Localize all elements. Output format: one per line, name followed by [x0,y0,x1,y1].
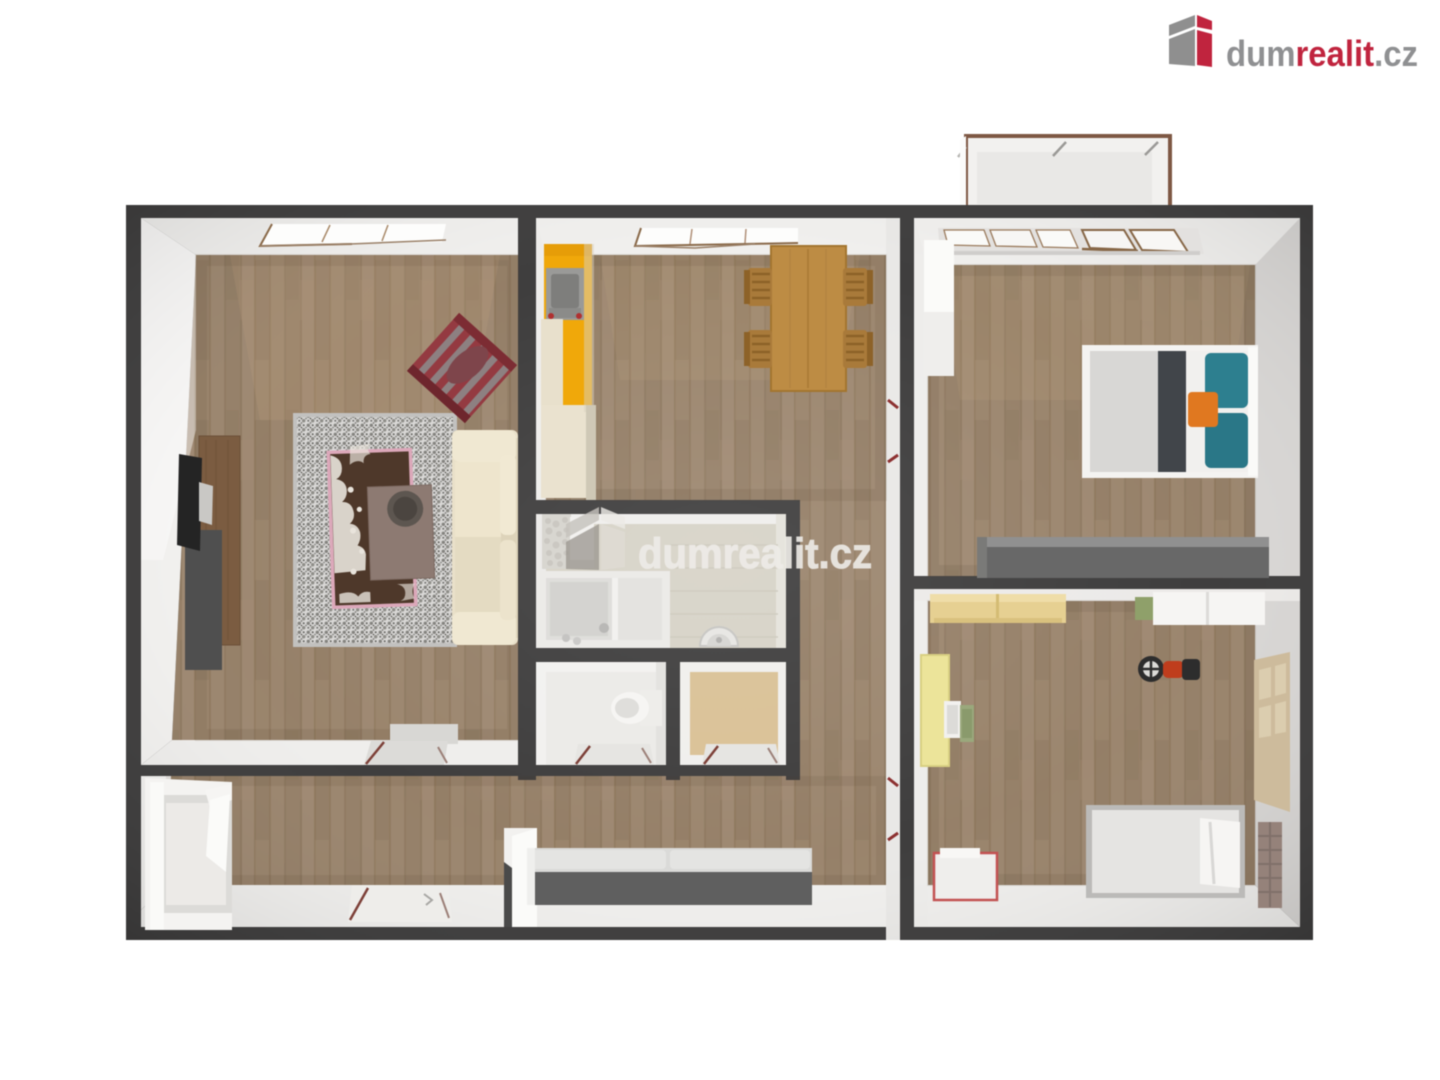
svg-text:dumrealit.cz: dumrealit.cz [1226,33,1418,74]
svg-text:dumrealit.cz: dumrealit.cz [638,530,872,578]
